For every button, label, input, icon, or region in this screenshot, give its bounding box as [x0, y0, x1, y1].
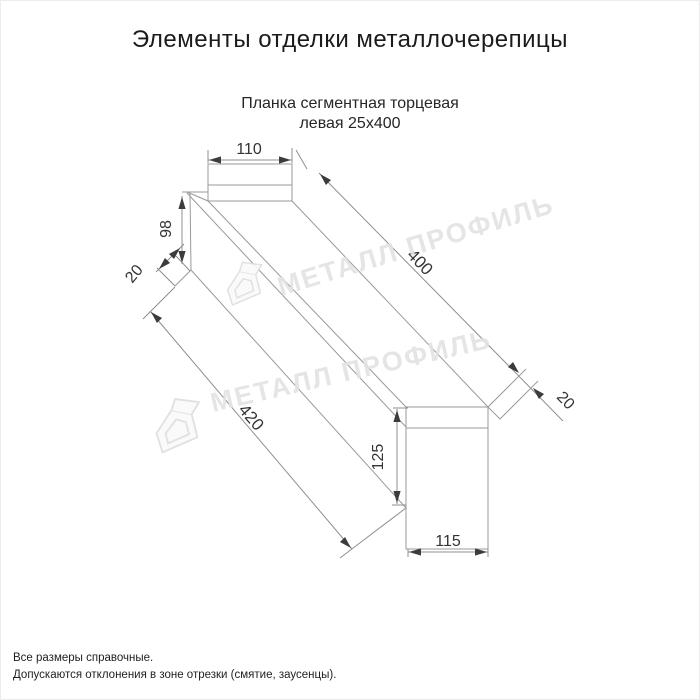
metall-profil-logo-icon [150, 394, 209, 453]
left-hem-edge [175, 270, 191, 286]
dim-right-hem-label: 20 [553, 389, 578, 414]
watermark-text-1: МЕТАЛЛ ПРОФИЛЬ [274, 189, 558, 302]
metall-profil-logo-icon [222, 258, 269, 305]
left-top-flange [208, 164, 292, 201]
right-tab-edge-a [488, 369, 526, 407]
footnotes: Все размеры справочные. Допускаются откл… [13, 650, 336, 684]
dim-left-height-label: 98 [158, 220, 175, 238]
watermark-text-2: МЕТАЛЛ ПРОФИЛЬ [208, 324, 495, 418]
footnote-line2: Допускаются отклонения в зоне отрезки (с… [13, 667, 336, 684]
footnote-line1: Все размеры справочные. [13, 650, 336, 667]
watermark-band-1: МЕТАЛЛ ПРОФИЛЬ [222, 189, 558, 305]
dim-right-height-label: 125 [370, 444, 387, 471]
right-tab-edge-b [500, 381, 538, 419]
technical-drawing: 110 98 20 400 20 420 125 115 МЕТАЛЛ ПРОФ… [0, 0, 700, 700]
dim-left-hem-label: 20 [122, 262, 147, 287]
right-tab-edge-c [488, 407, 500, 419]
watermark-band-2: МЕТАЛЛ ПРОФИЛЬ [150, 324, 495, 453]
dim-bottom-width-label: 115 [435, 533, 461, 550]
left-vertical-face [190, 193, 191, 270]
dim-top-width-label: 110 [236, 141, 262, 158]
